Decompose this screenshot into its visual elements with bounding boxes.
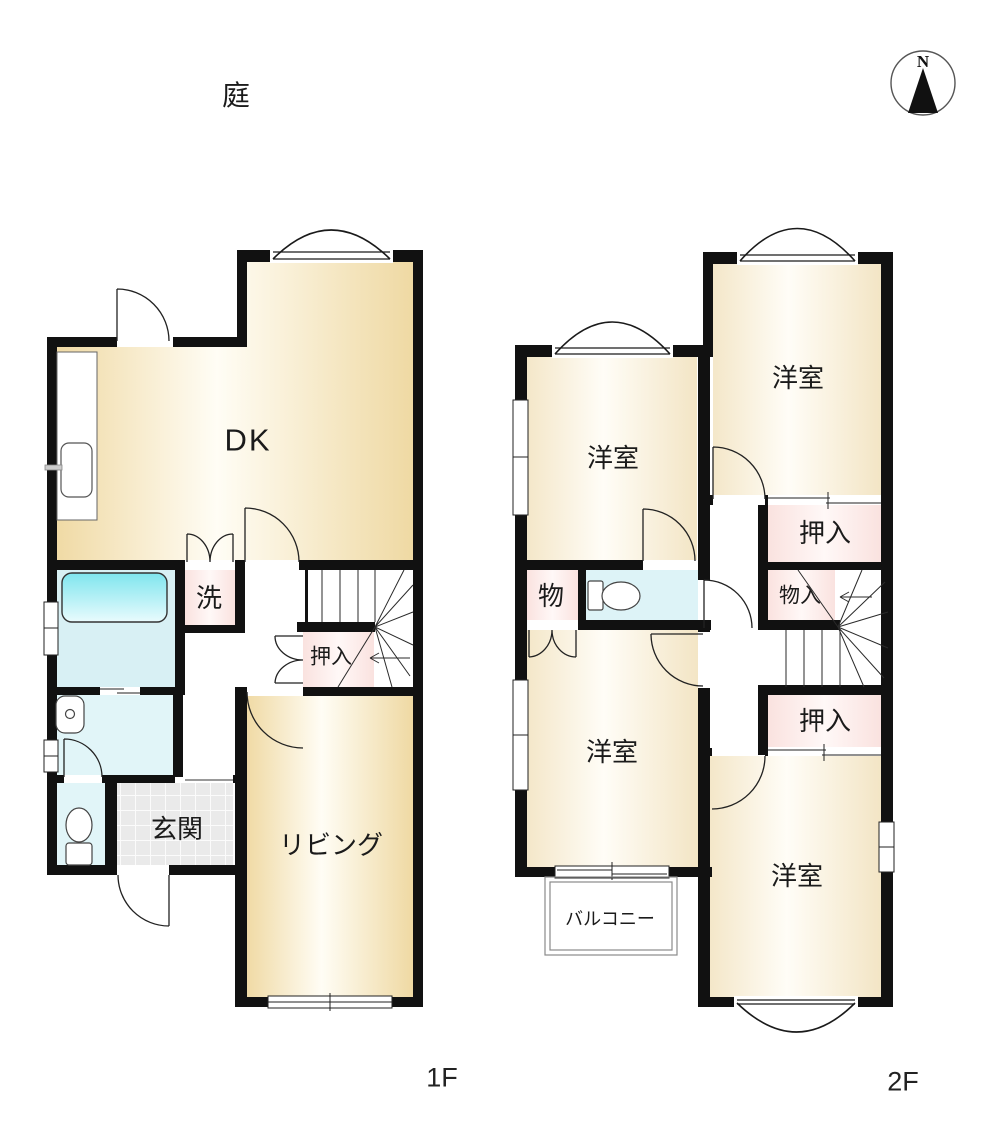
- closet-bottom-label: 押入: [799, 708, 851, 734]
- floorplan-canvas: N 庭 DK 洗 押入 リビング 玄関 1F 洋室 洋室 洋室 洋室 押入 物 …: [0, 0, 1000, 1144]
- bay-window-dk: [270, 230, 393, 263]
- laundry-label: 洗: [196, 585, 222, 611]
- window-washroom: [44, 740, 58, 772]
- balcony-label: バルコニー: [565, 910, 655, 928]
- entrance-door: [118, 875, 169, 926]
- floorplan-drawing: N: [0, 0, 1000, 1144]
- window-bathroom: [44, 602, 58, 655]
- bay-window-room-a: [552, 322, 673, 358]
- toilet2-door: [704, 580, 752, 628]
- toilet-2f: [588, 581, 640, 610]
- floor2-label: 2F: [887, 1069, 919, 1096]
- kitchen-door: [117, 289, 169, 341]
- compass-north-letter: N: [917, 52, 930, 71]
- closet1-doors: [275, 636, 303, 683]
- storage-label: 物入: [779, 586, 821, 607]
- window-living: [268, 993, 392, 1011]
- dk-label: DK: [224, 425, 271, 456]
- room-b-label: 洋室: [772, 365, 824, 391]
- bay-window-room-b: [737, 229, 858, 266]
- storage-small-label: 物: [538, 583, 564, 609]
- closet1-label: 押入: [310, 647, 352, 668]
- living-label: リビング: [279, 832, 383, 858]
- window-room-a: [513, 400, 528, 515]
- room-a-label: 洋室: [587, 445, 639, 471]
- garden-label: 庭: [222, 82, 250, 110]
- window-room-c: [513, 680, 528, 790]
- dk-floor: [57, 262, 413, 560]
- compass-icon: N: [891, 51, 955, 115]
- toilet-1f: [66, 808, 92, 865]
- window-room-d: [879, 822, 894, 872]
- bathtub: [62, 573, 167, 622]
- entrance-label: 玄関: [151, 816, 203, 842]
- room-d-label: 洋室: [771, 863, 823, 889]
- floor1-label: 1F: [426, 1065, 458, 1092]
- closet-top-label: 押入: [799, 520, 851, 546]
- bay-window-room-d: [734, 996, 858, 1032]
- washbasin: [56, 696, 84, 733]
- bath-slider: [100, 689, 140, 693]
- room-c-label: 洋室: [586, 739, 638, 765]
